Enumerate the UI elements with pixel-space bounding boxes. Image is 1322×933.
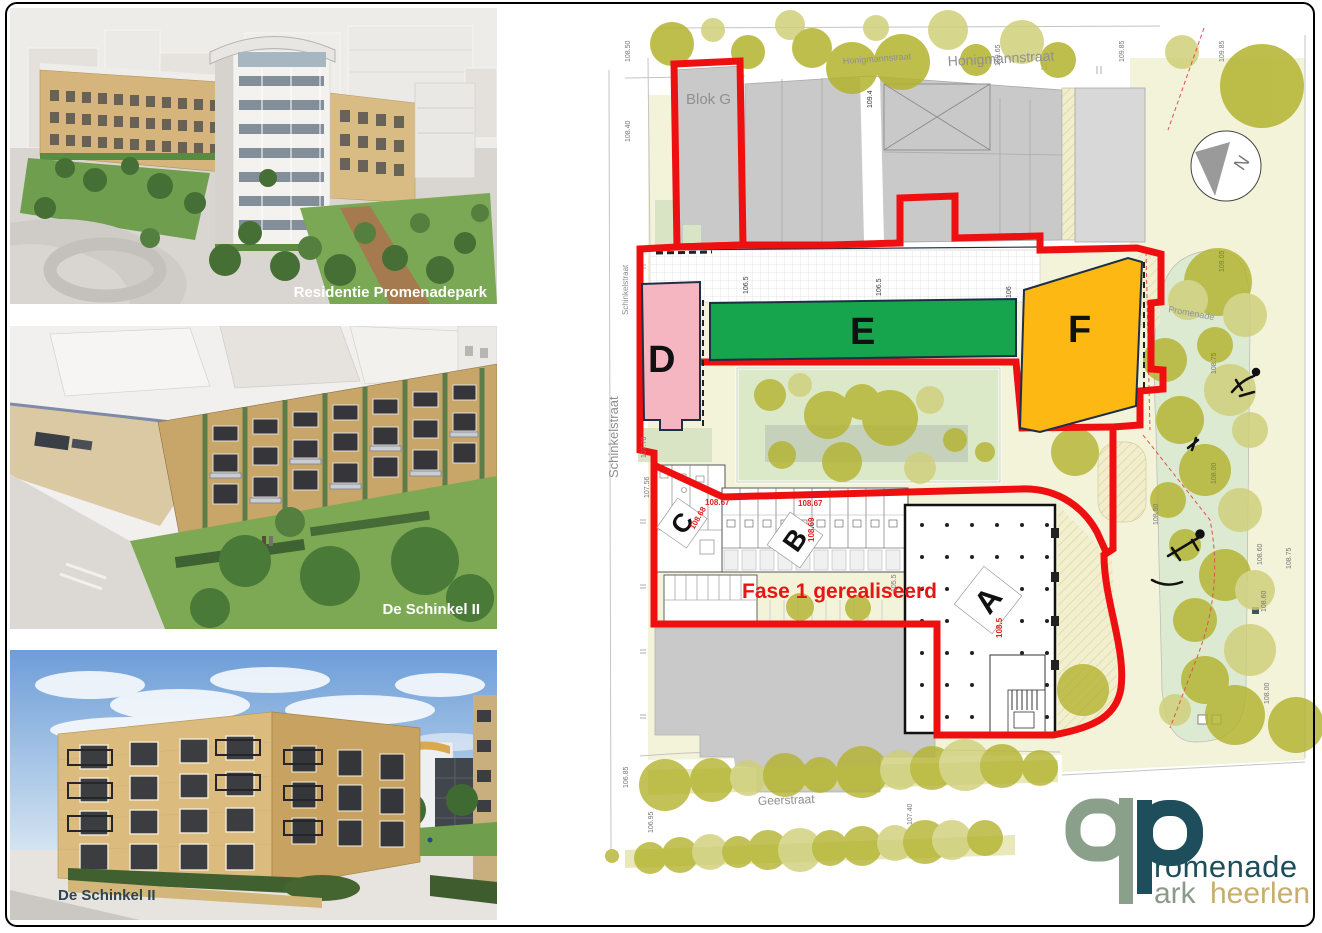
fase1-annotation: Fase 1 gerealiseerd: [742, 580, 937, 603]
elevation-label: 109.85: [1119, 40, 1126, 62]
photo-caption: De Schinkel II: [382, 601, 480, 618]
elevation-label: 109.85: [1219, 40, 1226, 62]
elevation-label: 108.5: [995, 617, 1004, 638]
elevation-label: 107.70: [641, 436, 648, 458]
render-photo-promenadepark: Residentie Promenadepark: [10, 8, 497, 304]
elevation-label: 108.00: [1211, 462, 1218, 484]
block-f-label: F: [1068, 309, 1091, 351]
render-scene-2: De Schinkel II: [10, 326, 497, 629]
elevation-label: 106.85: [623, 766, 630, 788]
logo-q-stem: [1119, 798, 1133, 904]
elevation-label: 109.65: [995, 44, 1002, 66]
stair-core: [990, 655, 1045, 732]
elevation-label: 106.5: [876, 278, 883, 296]
block-e-label: E: [850, 311, 875, 353]
photo-caption: Residentie Promenadepark: [294, 284, 488, 301]
logo-wordmark-heerlen: heerlen: [1210, 877, 1310, 910]
block-d-label: D: [648, 339, 675, 381]
promenadepark-logo: romenade ark heerlen: [1073, 798, 1310, 910]
blok-g-label: Blok G: [686, 91, 731, 108]
elevation-label: 106.95: [648, 811, 655, 833]
street-label: Schinkelstraat: [606, 396, 621, 478]
elevation-label: 108.50: [625, 40, 632, 62]
render-scene-1: Residentie Promenadepark: [10, 8, 497, 304]
elevation-label: 108.67: [705, 498, 730, 507]
elevation-label: 108.75: [1211, 352, 1218, 374]
elevation-label: 108.00: [1264, 682, 1271, 704]
elevation-label: 106.5: [743, 276, 750, 294]
logo-wordmark-park: ark: [1154, 877, 1197, 910]
elevation-label: 107.40: [907, 803, 914, 825]
site-plan: N Honigmannstraat Honigmannstraat Schink…: [500, 0, 1322, 933]
street-label: Geerstraat: [758, 792, 816, 808]
beige-apartment-wing: [40, 63, 235, 173]
plan-sheet: Residentie Promenadepark: [0, 0, 1322, 933]
street-label: Schinkelstraat: [621, 264, 630, 315]
photo-caption: De Schinkel II: [58, 887, 156, 904]
elevation-label: 108.50: [1153, 503, 1160, 525]
logo-p-stem: [1137, 800, 1152, 894]
render-photo-schinkel2-street: De Schinkel II: [10, 650, 497, 920]
site-plan-drawing: N Honigmannstraat Honigmannstraat Schink…: [500, 0, 1322, 933]
elevation-label: 108.67: [798, 499, 823, 508]
render-photo-schinkel2-aerial: De Schinkel II: [10, 326, 497, 628]
elevation-label: 105.5: [891, 574, 898, 592]
elevation-label: 108.75: [1286, 547, 1293, 569]
elevation-label: 108.40: [625, 120, 632, 142]
elevation-label: 106: [1006, 286, 1013, 298]
elevation-label: 109.4: [867, 90, 874, 108]
render-scene-3: De Schinkel II: [10, 650, 497, 920]
elevation-label: 108.69: [807, 517, 816, 542]
elevation-label: 108.60: [1261, 590, 1268, 612]
north-compass: N: [1191, 131, 1261, 201]
elevation-label: 109.05: [1219, 250, 1226, 272]
elevation-label: 108.60: [1257, 543, 1264, 565]
parking-strip: [650, 247, 1040, 302]
elevation-label: 107.56: [644, 476, 651, 498]
logo-q-glyph: [1073, 806, 1123, 854]
